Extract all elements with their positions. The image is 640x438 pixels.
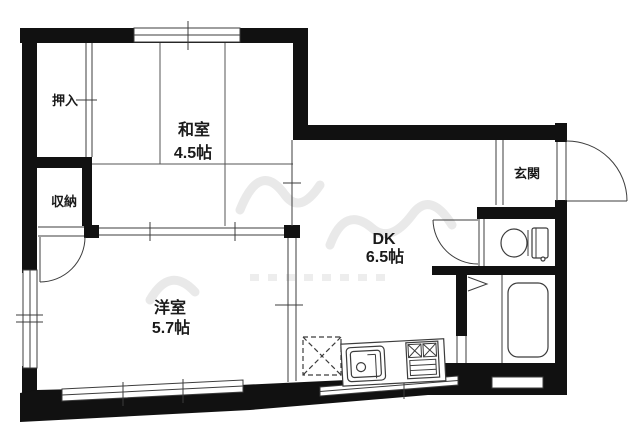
washitsu-size: 4.5帖 xyxy=(174,143,212,162)
oshiire-label: 押入 xyxy=(52,93,78,108)
dk-size: 6.5帖 xyxy=(366,247,404,266)
bathtub-icon xyxy=(508,283,548,357)
floor-plan-image: 押入 収納 和室 4.5帖 洋室 5.7帖 DK 6.5帖 玄関 xyxy=(0,0,640,438)
shuno-label: 収納 xyxy=(51,194,77,209)
kitchen-unit xyxy=(341,339,446,386)
yoshitsu-label: 洋室 xyxy=(154,298,186,317)
dk-label: DK xyxy=(372,231,396,248)
gas-stove-icon xyxy=(406,341,440,379)
floor-plan-canvas: 押入 収納 和室 4.5帖 洋室 5.7帖 DK 6.5帖 玄関 xyxy=(0,0,640,438)
washitsu-label: 和室 xyxy=(178,120,210,139)
yoshitsu-size: 5.7帖 xyxy=(152,318,190,337)
window-bath xyxy=(492,377,543,388)
genkan-label: 玄関 xyxy=(514,166,540,181)
kitchen-sink-icon xyxy=(346,346,386,382)
